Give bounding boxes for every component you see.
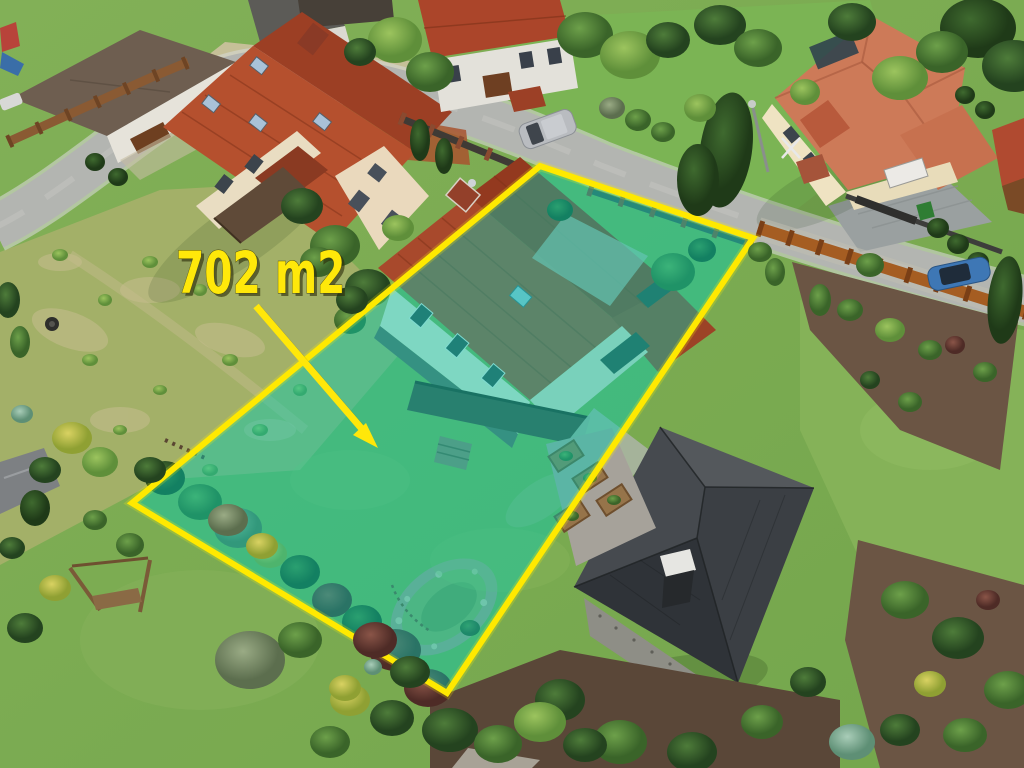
silver-blue-shrub bbox=[829, 724, 875, 760]
area-label: 702 m2 bbox=[176, 240, 345, 307]
roof-vent bbox=[468, 179, 476, 187]
photo-canvas: 702 m2 702 m2 bbox=[0, 0, 1024, 768]
aerial-property-photo: 702 m2 702 m2 bbox=[0, 0, 1024, 768]
garage-door bbox=[482, 72, 512, 98]
